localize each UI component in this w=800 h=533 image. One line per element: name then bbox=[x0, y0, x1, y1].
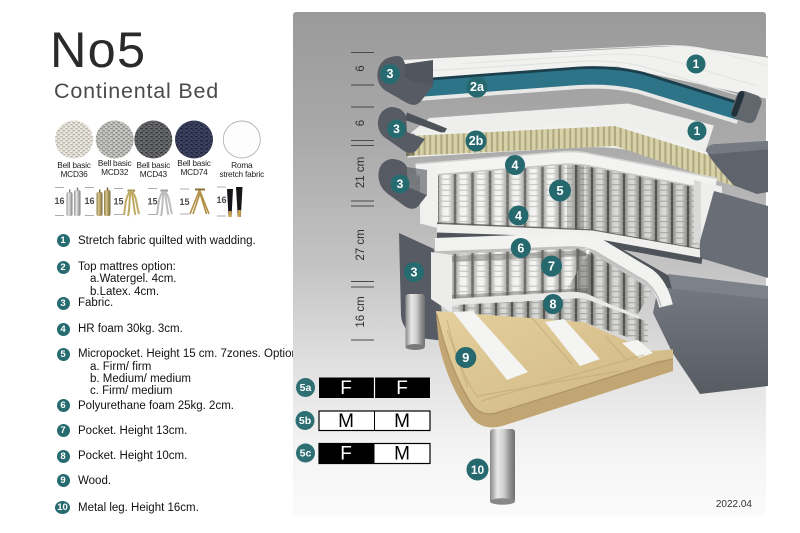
svg-text:21 cm: 21 cm bbox=[355, 157, 367, 188]
svg-text:3: 3 bbox=[411, 265, 418, 279]
svg-text:2a: 2a bbox=[470, 80, 485, 94]
svg-text:5c: 5c bbox=[300, 448, 312, 460]
svg-text:16 cm: 16 cm bbox=[355, 296, 367, 327]
svg-text:4: 4 bbox=[515, 209, 522, 223]
svg-text:3: 3 bbox=[397, 177, 404, 191]
svg-text:6: 6 bbox=[517, 241, 524, 255]
svg-text:7: 7 bbox=[548, 259, 555, 274]
svg-text:8: 8 bbox=[550, 297, 557, 311]
svg-text:6: 6 bbox=[355, 65, 367, 71]
svg-text:1: 1 bbox=[694, 124, 701, 138]
svg-text:10: 10 bbox=[471, 463, 485, 477]
svg-text:F: F bbox=[340, 378, 352, 399]
svg-text:27 cm: 27 cm bbox=[355, 229, 367, 260]
svg-text:3: 3 bbox=[393, 122, 400, 136]
svg-text:1: 1 bbox=[693, 57, 700, 71]
svg-text:5b: 5b bbox=[299, 415, 311, 427]
svg-text:F: F bbox=[340, 444, 352, 465]
svg-text:9: 9 bbox=[462, 350, 469, 365]
svg-text:6: 6 bbox=[355, 120, 367, 126]
svg-text:5a: 5a bbox=[300, 382, 312, 394]
svg-text:5: 5 bbox=[556, 183, 563, 198]
svg-text:M: M bbox=[394, 444, 410, 465]
svg-text:4: 4 bbox=[512, 158, 519, 172]
svg-text:F: F bbox=[396, 378, 408, 399]
svg-text:2b: 2b bbox=[469, 134, 484, 148]
svg-text:M: M bbox=[338, 411, 354, 432]
svg-text:M: M bbox=[394, 411, 410, 432]
svg-text:3: 3 bbox=[387, 67, 394, 81]
svg-text:2022.04: 2022.04 bbox=[716, 499, 753, 510]
